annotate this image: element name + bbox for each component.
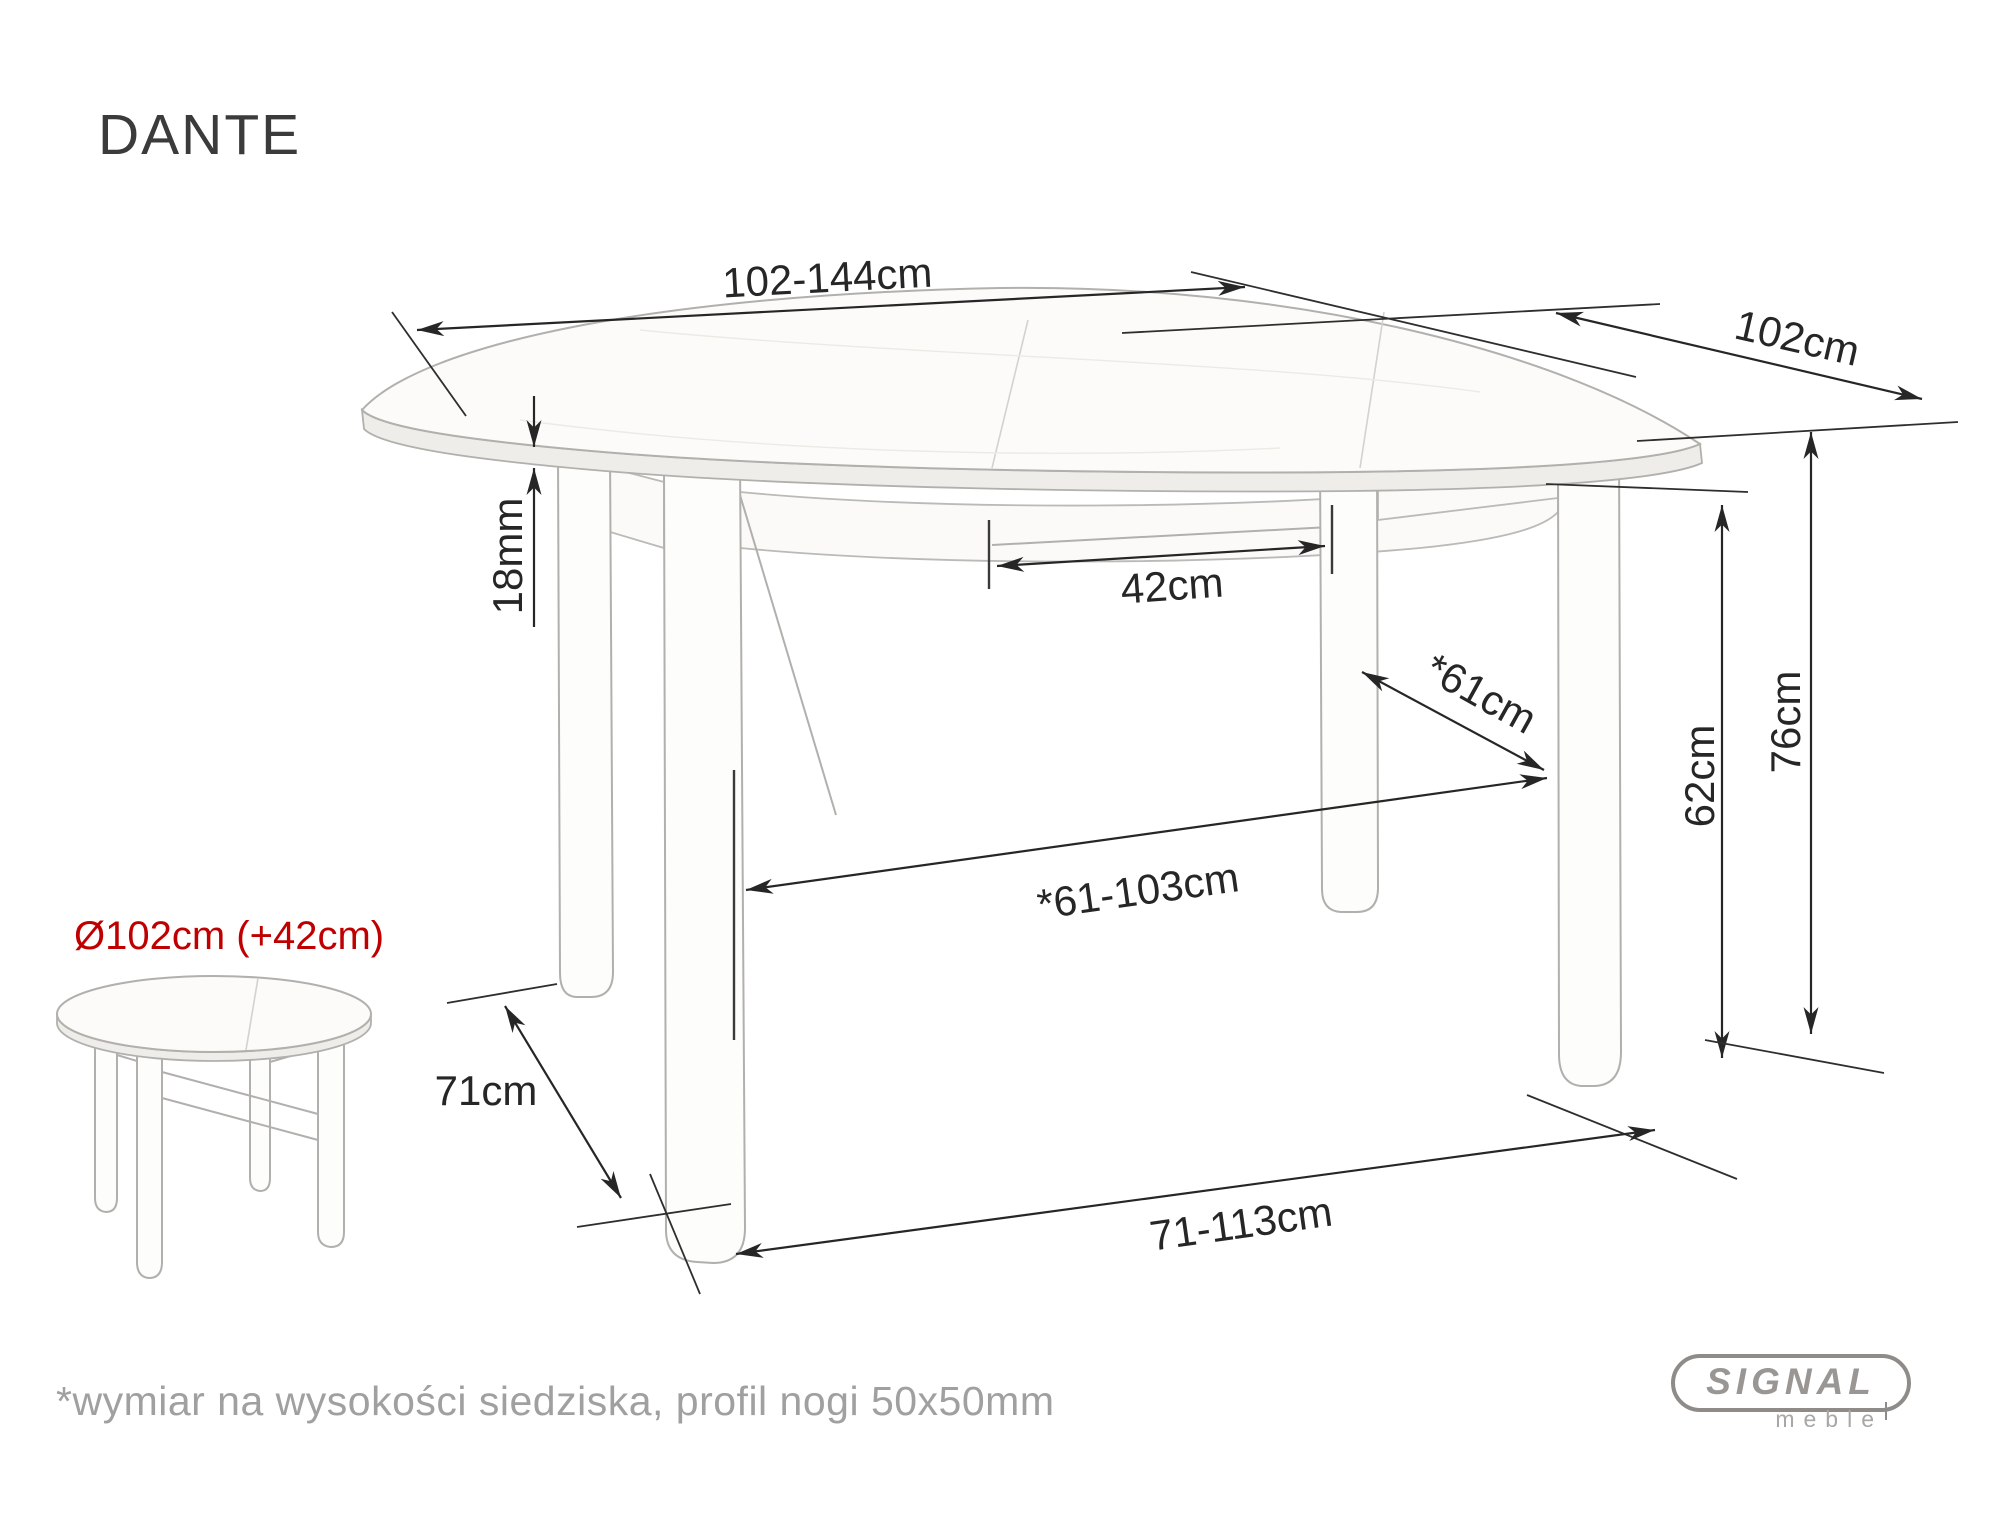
left-apron bbox=[610, 468, 664, 548]
small-leg-front-right bbox=[318, 1038, 344, 1247]
dim-leg-span-width: 71-113cm bbox=[650, 1095, 1737, 1294]
dimension-diagram: 102-144cm 102cm 18mm 42cm *61cm 62cm bbox=[0, 0, 2000, 1530]
dimension-sheet: DANTE bbox=[0, 0, 2000, 1530]
dim-extension-leaf-label: 42cm bbox=[1119, 559, 1225, 613]
dim-leg-span-width-label: 71-113cm bbox=[1147, 1188, 1335, 1260]
small-leg-back-right bbox=[250, 1050, 270, 1191]
logo-tick-line bbox=[1885, 1402, 1887, 1420]
extension-line bbox=[1705, 1040, 1884, 1073]
dim-top-thickness-label: 18mm bbox=[484, 498, 531, 615]
tabletop-surface bbox=[362, 288, 1700, 473]
table-leg-front-right bbox=[1558, 440, 1621, 1086]
dim-inner-width: *61-103cm bbox=[734, 770, 1547, 1040]
extension-line bbox=[1637, 422, 1958, 441]
logo-brand-text: SIGNAL bbox=[1706, 1361, 1876, 1403]
table-leg-back-left bbox=[558, 452, 613, 997]
dim-height: 76cm bbox=[1705, 432, 1884, 1073]
main-table-drawing bbox=[362, 288, 1702, 1263]
brand-logo: SIGNAL meble bbox=[1671, 1354, 1911, 1444]
dim-apron-to-floor-label: 62cm bbox=[1676, 725, 1723, 828]
footnote-text: *wymiar na wysokości siedziska, profil n… bbox=[56, 1378, 1054, 1425]
small-leg-back-left bbox=[95, 1038, 117, 1212]
dim-height-label: 76cm bbox=[1762, 671, 1809, 774]
logo-pill-outline: SIGNAL bbox=[1671, 1354, 1911, 1412]
small-front-apron-bottom-line bbox=[162, 1098, 318, 1140]
logo-subtitle-text: meble bbox=[1775, 1406, 1883, 1433]
dim-inner-width-label: *61-103cm bbox=[1034, 853, 1242, 928]
small-leg-front-left bbox=[137, 1046, 162, 1278]
extension-line bbox=[447, 984, 557, 1003]
dim-top-depth-label: 102cm bbox=[1731, 301, 1864, 375]
dim-inner-depth-label: *61cm bbox=[1418, 644, 1545, 743]
small-tabletop-surface bbox=[57, 976, 371, 1052]
extension-line bbox=[1527, 1095, 1737, 1179]
dim-inner-depth: *61cm bbox=[1362, 644, 1544, 770]
small-table-size-label: Ø102cm (+42cm) bbox=[74, 914, 384, 959]
table-leg-back-right bbox=[1320, 452, 1378, 912]
small-front-apron-top-line bbox=[162, 1072, 318, 1114]
dim-leg-span-depth-label: 71cm bbox=[435, 1067, 538, 1114]
small-table-drawing bbox=[57, 976, 371, 1278]
